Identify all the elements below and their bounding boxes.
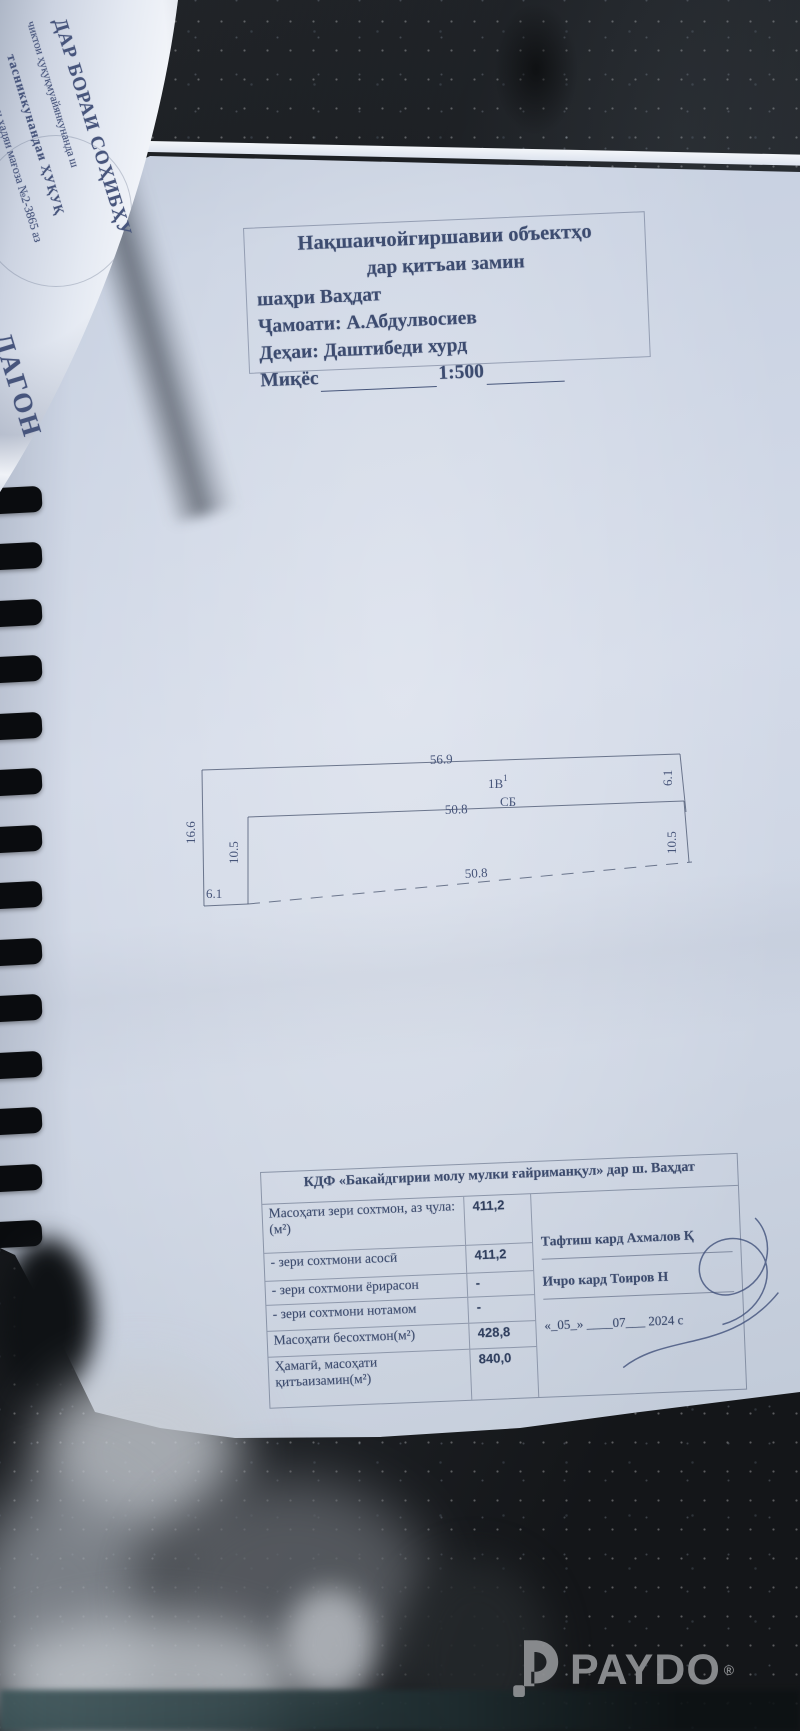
- binding-tooth: [0, 881, 43, 909]
- row-value: -: [466, 1271, 534, 1297]
- site-plan-diagram: 56.9 1В1 СБ 50.8 16.6 10.5 6.1 10.5 50.8…: [180, 726, 710, 926]
- dim-bottom-left: 6.1: [206, 886, 222, 901]
- binding-tooth: [0, 655, 43, 683]
- paydo-watermark: PAYDO ®: [506, 1638, 734, 1702]
- binding-tooth: [0, 938, 43, 966]
- building-type: СБ: [500, 794, 516, 809]
- scale-value: 1:500: [438, 358, 485, 387]
- binding-tooth: [0, 994, 43, 1022]
- handwritten-signature: [604, 1194, 796, 1386]
- dim-left-outer: 16.6: [183, 821, 198, 844]
- title-block: Нақшаичойгиршавии объектҳо дар қитъаи за…: [243, 211, 651, 374]
- row-label: Ҳамагӣ, масоҳати қитъаизамин(м²): [268, 1350, 471, 1408]
- photo-scene: Нақшаичойгиршавии объектҳо дар қитъаи за…: [0, 0, 800, 1731]
- row-value: 840,0: [469, 1347, 538, 1400]
- paydo-brand-text: PAYDO: [570, 1646, 721, 1695]
- parcel-left-line: [202, 770, 204, 906]
- paydo-logo-icon: [506, 1638, 560, 1702]
- registered-mark: ®: [724, 1662, 734, 1678]
- table-row: Ҳамагӣ, масоҳати қитъаизамин(м²) 840,0: [268, 1347, 538, 1408]
- binding-tooth: [0, 825, 43, 853]
- dim-top-inner: 50.8: [445, 801, 468, 817]
- blur-blob: [0, 1238, 95, 1403]
- row-value: 428,8: [468, 1321, 536, 1349]
- binding-tooth: [0, 1107, 43, 1135]
- dim-left-inner: 10.5: [226, 841, 241, 864]
- table-left-columns: Масоҳати зери сохтмон, аз ҷула:(м²) 411,…: [262, 1194, 538, 1408]
- parcel-bottom-left-line: [204, 904, 248, 906]
- dim-top-outer: 56.9: [430, 751, 453, 767]
- scale-underline: [486, 361, 565, 385]
- parcel-right-line: [680, 754, 686, 812]
- dim-right-outer: 6.1: [660, 770, 675, 786]
- binding-tooth: [0, 599, 43, 627]
- row-value: 411,2: [465, 1243, 533, 1273]
- binding-tooth: [0, 1051, 43, 1079]
- dim-bottom-inner: 50.8: [464, 865, 488, 881]
- row-value: 411,2: [463, 1194, 532, 1245]
- building-right-line: [684, 801, 689, 862]
- building-label: 1В1: [488, 773, 508, 791]
- row-label: Масоҳати зери сохтмон, аз ҷула:(м²): [262, 1197, 465, 1253]
- binding-tooth: [0, 712, 43, 740]
- dim-right-inner: 10.5: [664, 831, 679, 854]
- binding-tooth: [0, 1164, 43, 1192]
- signature-stroke: [619, 1293, 783, 1368]
- binding-tooth: [0, 768, 43, 796]
- row-value: -: [467, 1295, 535, 1323]
- blur-blob: [285, 1588, 375, 1698]
- scale-label: Миқёс: [260, 365, 319, 394]
